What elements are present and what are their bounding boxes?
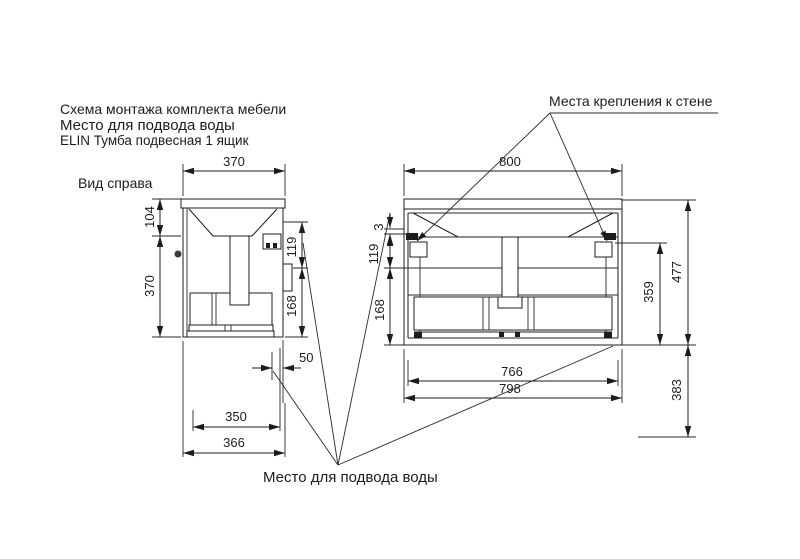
front-center-clip	[515, 332, 520, 337]
bracket-screw	[273, 243, 277, 248]
dim-front-left-upper: 119	[366, 244, 381, 265]
dim-side-right-lower: 168	[284, 295, 299, 317]
dim-side-bottom-outer: 366	[223, 435, 245, 450]
title-line-1: Схема монтажа комплекта мебели	[60, 101, 286, 117]
wall-mount-callout: Места крепления к стене	[417, 93, 718, 241]
dim-side-left-lower: 370	[142, 275, 157, 297]
side-drawer-front-lower	[187, 331, 274, 337]
front-right-bracket	[595, 242, 612, 257]
mounting-scheme-canvas: Схема монтажа комплекта мебели Место для…	[0, 0, 800, 559]
title-line-2: Место для подвода воды	[60, 117, 235, 134]
front-view-drawing	[404, 199, 622, 345]
side-countertop	[181, 199, 285, 208]
side-view-drawing	[175, 199, 293, 337]
water-supply-callout: Место для подвода воды	[263, 213, 613, 486]
front-drain-cap	[498, 297, 522, 308]
dim-front-top-width: 800	[499, 154, 521, 169]
dim-side-top-width: 370	[223, 154, 245, 169]
side-mounting-bracket	[263, 234, 281, 249]
front-drain-pipe	[502, 237, 518, 297]
dim-front-total-height: 477	[669, 261, 684, 283]
front-left-foot	[414, 332, 422, 338]
side-sink-basin	[189, 209, 277, 236]
dim-side-bottom-inner: 350	[225, 409, 247, 424]
wall-mount-label: Места крепления к стене	[549, 93, 713, 109]
dim-front-floor-clearance: 383	[669, 379, 684, 401]
dim-front-left-gap: 3	[371, 223, 386, 230]
front-view-dimensions: 800 3 119 168 359 477 383 766 798	[366, 154, 688, 437]
bracket-screw	[266, 243, 270, 248]
dim-side-left-upper: 104	[142, 206, 157, 228]
dim-side-right-upper: 119	[284, 237, 299, 258]
title-line-3: ELIN Тумба подвесная 1 ящик	[60, 133, 249, 148]
dim-front-bottom-inner: 766	[501, 364, 523, 379]
water-supply-label: Место для подвода воды	[263, 469, 438, 486]
title-block: Схема монтажа комплекта мебели Место для…	[60, 101, 286, 148]
front-left-bracket	[410, 242, 427, 257]
side-view-label: Вид справа	[78, 175, 153, 191]
side-wall-fixing-dot	[175, 251, 182, 258]
technical-drawing: Схема монтажа комплекта мебели Место для…	[0, 0, 800, 559]
front-center-clip	[499, 332, 504, 337]
side-drain-pipe	[230, 236, 249, 305]
dim-front-left-lower: 168	[372, 299, 387, 321]
side-handle	[283, 264, 292, 291]
front-right-foot	[604, 332, 612, 338]
dim-side-water-offset: 50	[299, 350, 313, 365]
dim-front-inner-height: 359	[641, 281, 656, 303]
